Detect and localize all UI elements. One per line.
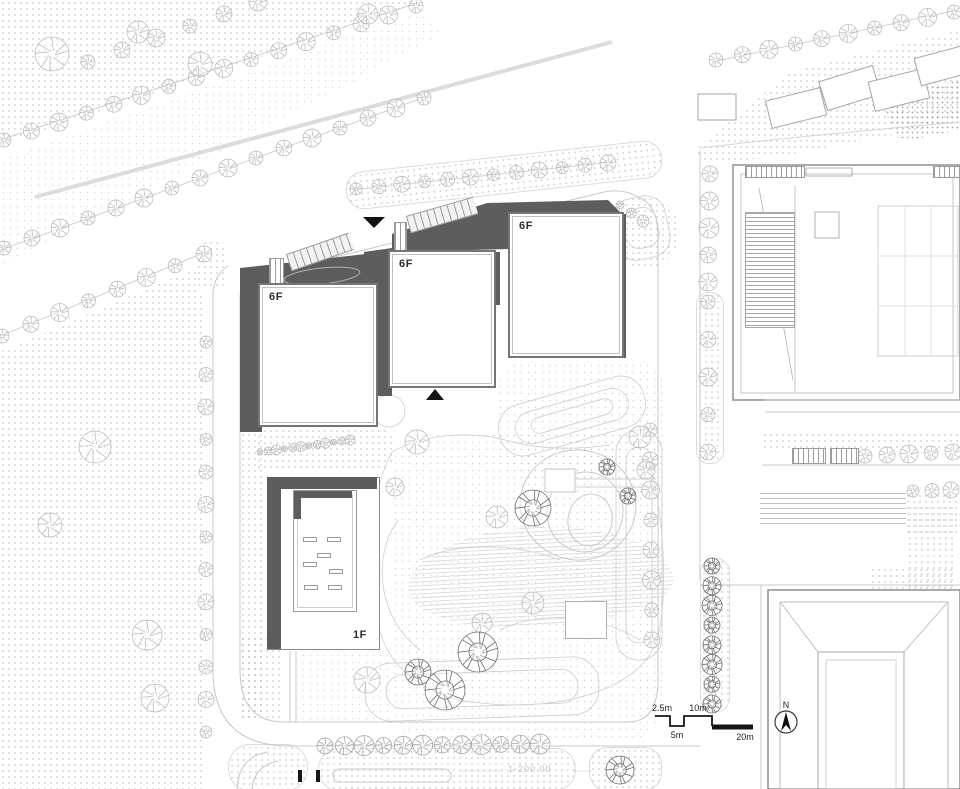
- tree-icon: [943, 482, 959, 498]
- tree-icon: [216, 6, 232, 22]
- tree-icon: [386, 478, 404, 496]
- tree-icon: [141, 684, 169, 712]
- tree-icon: [699, 218, 719, 238]
- tree-icon: [702, 655, 722, 675]
- tower-middle-inner-line: [392, 254, 492, 384]
- tree-icon: [215, 60, 233, 78]
- tree-icon: [188, 52, 212, 76]
- tree-icon: [441, 173, 455, 187]
- tree-icon: [192, 170, 208, 186]
- roof-vent-b: [933, 166, 960, 178]
- tree-icon: [51, 219, 69, 237]
- terrace-steps: [760, 493, 906, 526]
- tree-icon: [620, 488, 636, 504]
- tree-icon: [345, 435, 355, 445]
- tree-icon: [257, 449, 263, 455]
- tree-icon: [81, 211, 95, 225]
- tree-icon: [463, 169, 479, 185]
- tree-icon: [198, 497, 214, 513]
- hall-label: 1F: [353, 629, 367, 641]
- tree-icon: [199, 563, 213, 577]
- tree-icon: [198, 594, 214, 610]
- tree-icon: [271, 445, 281, 455]
- tree-icon: [858, 449, 872, 463]
- site-plan: 2.5m 5m 10m 20m N 6F 6F 6F: [0, 0, 960, 789]
- tree-icon: [814, 31, 830, 47]
- tree-icon: [515, 490, 551, 526]
- tree-icon: [637, 461, 655, 479]
- tower-right: 6F: [508, 212, 624, 358]
- tree-icon: [486, 506, 508, 528]
- tree-icon: [642, 481, 660, 499]
- tree-icon: [893, 15, 909, 31]
- tree-icon: [50, 113, 68, 131]
- tree-icon: [868, 21, 882, 35]
- tree-icon: [313, 440, 321, 448]
- south-east-building: [768, 590, 960, 789]
- tree-icon: [645, 603, 659, 617]
- tree-icon: [409, 0, 423, 13]
- scale-label-5m: 5m: [671, 730, 684, 740]
- tree-icon: [704, 676, 720, 692]
- tree-icon: [643, 542, 659, 558]
- tree-icon: [629, 426, 651, 448]
- tree-icon: [333, 121, 347, 135]
- tree-icon: [338, 437, 346, 445]
- tree-icon: [394, 176, 410, 192]
- hall-shadow-north: [281, 477, 377, 489]
- tree-icon: [303, 129, 321, 147]
- tree-icon: [168, 259, 182, 273]
- tree-icon: [137, 268, 155, 286]
- tree-icon: [701, 295, 715, 309]
- tower-middle: 6F: [388, 250, 496, 388]
- tree-icon: [147, 29, 165, 47]
- tree-icon: [704, 558, 720, 574]
- tree-icon: [453, 736, 471, 754]
- hatch-block-a: [792, 448, 826, 464]
- tree-icon: [317, 738, 333, 754]
- hall-bar: [303, 537, 317, 542]
- tower-right-inner-line: [512, 216, 620, 354]
- tree-icon: [331, 439, 337, 445]
- tree-icon: [704, 617, 720, 633]
- tree-icon: [376, 737, 392, 753]
- hall-bar: [304, 585, 318, 590]
- tree-icon: [0, 241, 11, 255]
- tower-left: 6F: [258, 283, 378, 427]
- tree-icon: [709, 53, 723, 67]
- tree-icon: [127, 21, 149, 43]
- tree-icon: [425, 670, 465, 710]
- road-tick: [298, 770, 302, 782]
- scale-label-10m: 10m: [689, 703, 707, 713]
- level-note: 1-200.00: [508, 764, 552, 774]
- entrance-marker-south: [426, 389, 444, 400]
- north-label: N: [783, 700, 790, 710]
- tree-icon: [360, 110, 376, 126]
- tree-icon: [699, 368, 717, 386]
- tree-icon: [578, 158, 592, 172]
- tree-icon: [276, 140, 292, 156]
- hatch-block-b: [830, 448, 859, 464]
- tree-icon: [199, 368, 213, 382]
- east-building-louvers: [745, 212, 795, 328]
- tree-icon: [394, 736, 412, 754]
- tree-icon: [701, 408, 715, 422]
- tree-icon: [354, 736, 374, 756]
- garden-pavilion: [565, 601, 607, 639]
- tree-icon: [35, 37, 69, 71]
- tree-icon: [471, 735, 491, 755]
- tree-icon: [606, 756, 634, 784]
- hall-courtyard: [293, 490, 357, 612]
- tree-icon: [599, 459, 615, 475]
- tree-icon: [196, 246, 212, 262]
- tree-icon: [336, 737, 354, 755]
- tree-icon: [493, 736, 509, 752]
- tree-icon: [699, 273, 717, 291]
- tree-icon: [530, 734, 550, 754]
- tree-icon: [135, 189, 153, 207]
- tree-icon: [0, 329, 9, 343]
- tree-icon: [637, 215, 649, 227]
- road-tick: [316, 770, 320, 782]
- courtyard-inner-line: [297, 494, 353, 608]
- tree-icon: [703, 636, 721, 654]
- tree-icon: [200, 629, 212, 641]
- tree-icon: [472, 613, 492, 633]
- tree-icon: [925, 484, 939, 498]
- tower-middle-label: 6F: [399, 258, 413, 270]
- tree-icon: [327, 26, 341, 40]
- tree-icon: [198, 692, 214, 708]
- hall-bar: [303, 562, 317, 567]
- tree-icon: [200, 726, 212, 738]
- tree-icon: [79, 106, 93, 120]
- tree-icon: [306, 442, 312, 448]
- tree-icon: [900, 445, 918, 463]
- tree-icon: [51, 304, 69, 322]
- tower-left-inner-line: [262, 287, 374, 423]
- hall-1f: 1F: [267, 477, 380, 650]
- tree-icon: [701, 247, 717, 263]
- tree-icon: [183, 19, 197, 33]
- tree-icon: [249, 151, 263, 165]
- tree-icon: [700, 444, 716, 460]
- courtyard-shadow-l: [294, 491, 352, 498]
- tree-icon: [200, 531, 212, 543]
- tree-icon: [271, 43, 287, 59]
- tree-icon: [703, 577, 721, 595]
- tree-icon: [879, 447, 895, 463]
- tree-icon: [702, 595, 722, 615]
- tree-icon: [358, 4, 378, 24]
- tree-icon: [132, 86, 150, 104]
- hall-bar: [328, 585, 342, 590]
- hatch-block-d: [269, 258, 284, 285]
- tree-icon: [23, 316, 39, 332]
- tree-icon: [249, 0, 267, 11]
- tree-icon: [788, 37, 802, 51]
- tree-icon: [458, 632, 498, 672]
- tree-icon: [700, 332, 716, 348]
- tree-icon: [919, 8, 937, 26]
- tree-icon: [945, 444, 960, 460]
- tree-icon: [165, 181, 179, 195]
- tree-icon: [600, 155, 616, 171]
- tree-icon: [434, 737, 450, 753]
- tree-icon: [200, 434, 212, 446]
- tree-icon: [419, 176, 431, 188]
- tree-icon: [200, 336, 212, 348]
- tree-icon: [372, 180, 386, 194]
- tree-icon: [924, 446, 938, 460]
- tree-icon: [106, 96, 122, 112]
- tree-icon: [616, 201, 624, 209]
- tree-icon: [296, 442, 306, 452]
- tree-icon: [642, 571, 660, 589]
- tree-icon: [38, 513, 62, 537]
- tree-icon: [264, 447, 272, 455]
- tree-icon: [531, 162, 547, 178]
- tree-icon: [109, 281, 125, 297]
- tree-icon: [487, 169, 499, 181]
- tree-icon: [405, 659, 431, 685]
- hall-bar: [327, 537, 341, 542]
- tree-icon: [282, 446, 288, 452]
- diagonal-road: [35, 42, 612, 197]
- tree-icon: [734, 47, 750, 63]
- tree-icon: [556, 162, 568, 174]
- tree-icon: [907, 485, 919, 497]
- tree-icon: [644, 513, 658, 527]
- scale-bar: 2.5m 5m 10m 20m: [652, 703, 754, 742]
- hatch-block-c: [394, 222, 407, 251]
- tree-icon: [627, 208, 637, 218]
- tree-icon: [511, 735, 529, 753]
- scale-label-20m: 20m: [736, 732, 754, 742]
- tree-icon: [350, 183, 362, 195]
- tower-left-label: 6F: [269, 291, 283, 303]
- tree-icon: [24, 230, 40, 246]
- tree-icon: [354, 667, 380, 693]
- tree-icon: [405, 430, 429, 454]
- tree-icon: [244, 53, 258, 67]
- tree-icon: [947, 5, 960, 19]
- tree-icon: [79, 431, 111, 463]
- tree-icon: [522, 592, 544, 614]
- tree-icon: [199, 465, 213, 479]
- tree-icon: [132, 620, 162, 650]
- tree-icon: [0, 133, 11, 147]
- scale-label-2-5m: 2.5m: [652, 703, 672, 713]
- tree-icon: [162, 79, 176, 93]
- tree-icon: [644, 632, 660, 648]
- entrance-marker-north: [363, 217, 385, 228]
- tree-icon: [417, 91, 431, 105]
- tree-icon: [81, 55, 95, 69]
- tree-icon: [23, 123, 39, 139]
- tree-icon: [82, 294, 96, 308]
- tower-right-label: 6F: [519, 220, 533, 232]
- hall-shadow-west: [267, 477, 281, 649]
- hall-bar: [317, 553, 331, 558]
- tree-icon: [387, 99, 405, 117]
- tree-icon: [108, 200, 124, 216]
- tree-icon: [219, 159, 237, 177]
- tree-icon: [114, 42, 130, 58]
- courtyard-shadow-v: [294, 491, 301, 519]
- tree-icon: [198, 399, 214, 415]
- tree-icon: [509, 165, 523, 179]
- tree-icon: [413, 735, 433, 755]
- hall-bar: [329, 569, 343, 574]
- tree-icon: [320, 438, 330, 448]
- tree-icon: [199, 660, 213, 674]
- tree-icon: [702, 166, 718, 182]
- tree-icon: [760, 40, 778, 58]
- roof-vent-a: [745, 166, 805, 178]
- tree-icon: [297, 33, 315, 51]
- tree-icon: [380, 6, 398, 24]
- tree-icon: [839, 24, 857, 42]
- tree-icon: [701, 192, 719, 210]
- tree-icon: [289, 444, 297, 452]
- site-plan-linework: 2.5m 5m 10m 20m N: [0, 0, 960, 789]
